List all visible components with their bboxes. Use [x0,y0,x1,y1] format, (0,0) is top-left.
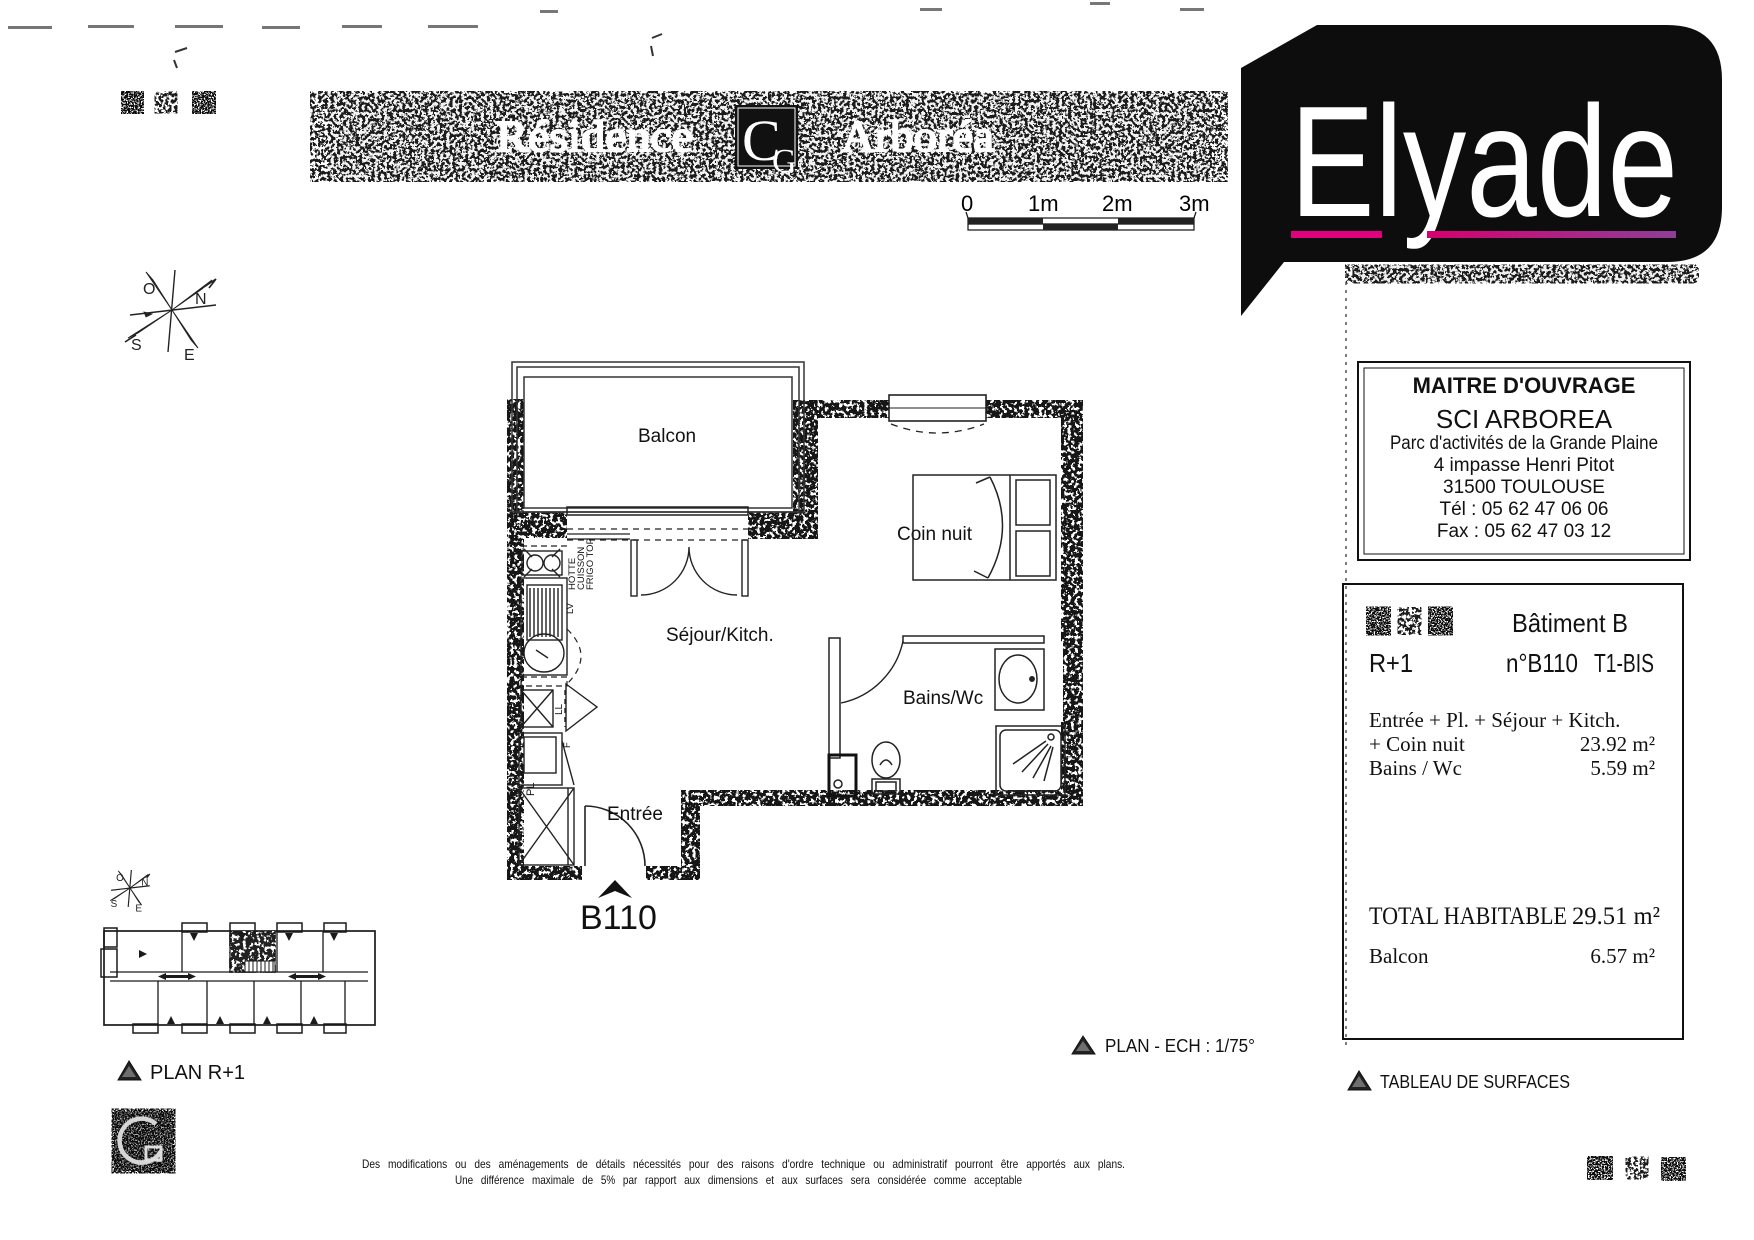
svg-text:Séjour/Kitch.: Séjour/Kitch. [666,625,774,646]
svg-text:Coin nuit: Coin nuit [897,524,973,545]
svg-text:O: O [116,873,124,884]
svg-text:SCI ARBOREA: SCI ARBOREA [1436,404,1613,434]
svg-text:LL: LL [554,703,565,715]
svg-text:Entrée: Entrée [607,804,663,825]
svg-text:31500 TOULOUSE: 31500 TOULOUSE [1443,477,1605,498]
svg-text:+ Coin nuit: + Coin nuit [1369,732,1465,756]
svg-text:E: E [184,347,195,364]
svg-text:G: G [772,143,797,180]
svg-text:5.59 m²: 5.59 m² [1590,756,1655,780]
svg-text:N: N [141,877,148,888]
svg-text:Bâtiment B: Bâtiment B [1512,608,1628,638]
svg-text:O: O [143,281,155,298]
svg-text:Fax : 05 62 47 03 12: Fax : 05 62 47 03 12 [1437,521,1611,542]
svg-text:S: S [111,899,118,910]
svg-text:FRIGO TOP: FRIGO TOP [585,538,596,590]
svg-text:LV: LV [565,602,576,614]
svg-text:MAITRE D'OUVRAGE: MAITRE D'OUVRAGE [1413,373,1636,398]
svg-text:PLAN - ECH : 1/75°: PLAN - ECH : 1/75° [1105,1036,1255,1056]
svg-text:29.51 m²: 29.51 m² [1572,903,1660,930]
svg-text:Une différence maximale de 5%: Une différence maximale de 5% par rappor… [455,1173,1022,1187]
svg-text:Arboréa: Arboréa [841,112,994,161]
svg-text:T1-BIS: T1-BIS [1594,648,1654,678]
svg-text:E: E [135,903,142,914]
svg-text:Bains / Wc: Bains / Wc [1369,756,1462,780]
svg-text:Bains/Wc: Bains/Wc [903,688,983,709]
svg-text:N: N [195,291,207,308]
svg-text:S: S [131,337,142,354]
svg-text:F: F [562,742,573,748]
svg-text:6.57 m²: 6.57 m² [1590,944,1655,968]
svg-text:3m: 3m [1179,191,1210,216]
svg-text:Elyade: Elyade [1290,74,1678,250]
svg-text:Balcon: Balcon [638,426,696,447]
svg-text:Parc d'activités de la Grande: Parc d'activités de la Grande Plaine [1390,433,1658,454]
svg-text:2m: 2m [1102,191,1133,216]
svg-text:PL: PL [525,783,537,796]
svg-text:4 impasse Henri Pitot: 4 impasse Henri Pitot [1434,455,1615,476]
svg-text:n°B110: n°B110 [1506,648,1578,678]
svg-text:1m: 1m [1028,191,1059,216]
svg-text:Résidence: Résidence [496,112,693,161]
svg-text:0: 0 [961,191,973,216]
svg-text:TOTAL HABITABLE: TOTAL HABITABLE [1369,903,1567,930]
svg-text:R+1: R+1 [1369,648,1413,678]
svg-text:Entrée + Pl. + Séjour + Kitch.: Entrée + Pl. + Séjour + Kitch. [1369,708,1620,732]
svg-text:Balcon: Balcon [1369,944,1429,968]
svg-text:Des modifications ou des aména: Des modifications ou des aménagements de… [362,1157,1125,1171]
svg-text:PLAN R+1: PLAN R+1 [150,1062,245,1084]
svg-text:B110: B110 [580,899,657,937]
svg-text:23.92 m²: 23.92 m² [1580,732,1655,756]
svg-text:Tél : 05 62 47 06 06: Tél : 05 62 47 06 06 [1439,499,1608,520]
svg-text:TABLEAU DE SURFACES: TABLEAU DE SURFACES [1380,1071,1570,1092]
